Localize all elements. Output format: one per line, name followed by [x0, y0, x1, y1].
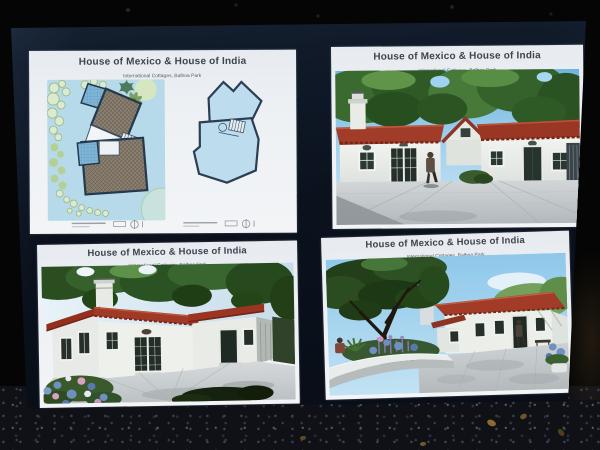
cottage-rendering [326, 253, 570, 396]
cottage-rendering [335, 69, 580, 225]
window [78, 331, 91, 355]
plan-caption-right [183, 219, 254, 228]
north-arrow-icon [131, 220, 139, 229]
french-doors [133, 335, 164, 376]
scale-bar [225, 221, 237, 226]
upper-floor-plan [194, 82, 262, 183]
panel-header: House of Mexico & House of India Interna… [29, 50, 296, 75]
panel-rendering-angled: House of Mexico & House of India Interna… [37, 240, 300, 408]
attic-vent [461, 128, 471, 137]
site-plan [47, 78, 183, 230]
floor-plan-drawing [33, 76, 293, 230]
north-arrow-icon [242, 219, 250, 228]
window [60, 337, 73, 361]
panel-rendering-garden: House of Mexico & House of India Interna… [321, 231, 574, 400]
pantry-room [99, 141, 119, 155]
window [105, 330, 120, 351]
entry-door [522, 145, 544, 185]
photo-stage: House of Mexico & House of India Interna… [0, 0, 600, 450]
panel-rendering-front: House of Mexico & House of India Interna… [331, 45, 585, 229]
window [242, 328, 254, 347]
cottage-rendering [41, 263, 295, 404]
scale-bar [114, 221, 126, 226]
window [489, 149, 505, 167]
main-facade [94, 305, 199, 379]
panel-floor-plans: House of Mexico & House of India Interna… [29, 50, 297, 234]
french-doors [389, 146, 418, 183]
plaza [336, 180, 580, 225]
plan-caption-left [72, 220, 143, 229]
kitchen-room [77, 141, 99, 165]
entry-door [218, 328, 239, 363]
panel-header: House of Mexico & House of India Interna… [331, 45, 583, 70]
planter-pot [551, 363, 567, 373]
window [534, 316, 546, 333]
window [449, 329, 460, 343]
presentation-board: House of Mexico & House of India Interna… [0, 0, 600, 450]
side-foliage [272, 316, 295, 365]
window [474, 321, 486, 338]
window [358, 151, 376, 172]
lawn-arc [141, 188, 183, 230]
window [493, 319, 505, 336]
